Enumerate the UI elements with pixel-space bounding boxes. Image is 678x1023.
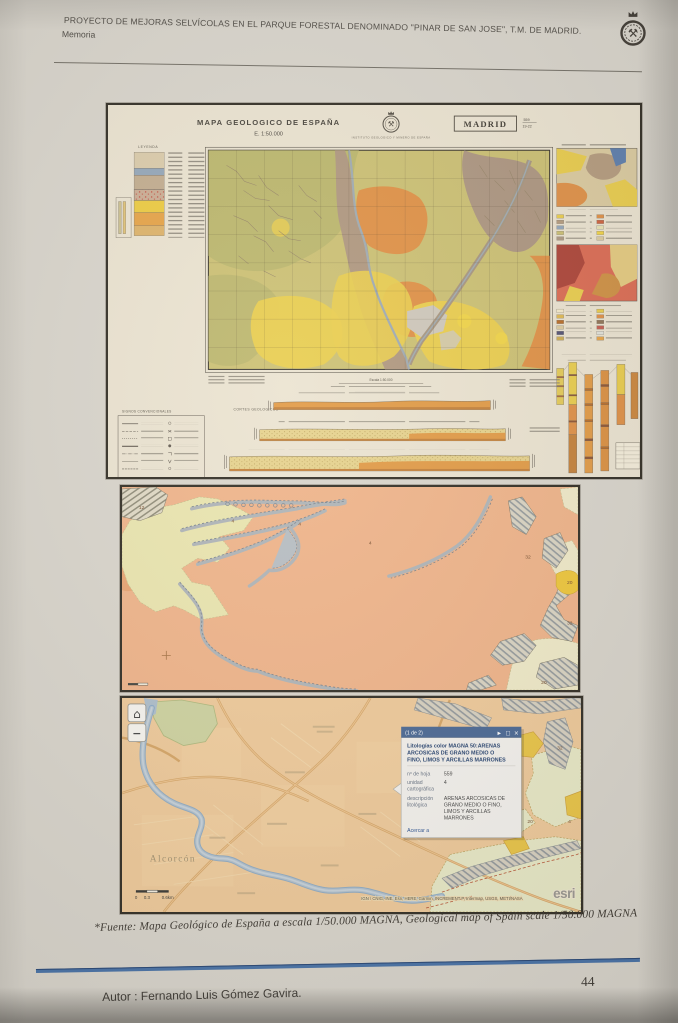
svg-text:LIMOS Y ARCILLAS: LIMOS Y ARCILLAS — [444, 809, 491, 815]
svg-text:4: 4 — [369, 540, 372, 546]
figure-geology-detail-map: 12 4 4 4 32 20 32 20 — [120, 485, 580, 692]
map-attribution: IGN / CNIG, INE, Esri, HERE, Garmin, INC… — [361, 896, 523, 901]
sheet-number: 559 — [524, 118, 530, 122]
svg-text:20: 20 — [567, 580, 573, 586]
svg-text:⚒: ⚒ — [388, 120, 395, 129]
photographed-report-page: { "page": { "header_title": "PROYECTO DE… — [0, 0, 678, 1023]
inset-geomorphologic-map — [557, 148, 637, 206]
place-label: Alcorcón — [150, 854, 196, 864]
footer-author: Autor : Fernando Luis Gómez Gavira. — [102, 986, 302, 1004]
home-icon: ⌂ — [133, 707, 141, 721]
sheet-main-map — [205, 147, 552, 372]
esri-logo: esri — [553, 886, 575, 901]
popup-close-icon[interactable]: × — [514, 730, 519, 737]
sheet-scale: E. 1:50.000 — [254, 132, 283, 138]
svg-text:4: 4 — [232, 519, 235, 525]
header-rule — [54, 62, 642, 73]
sheet-grid-number: 19-22 — [523, 125, 532, 129]
cortes-label: CORTES GEOLOGICOS — [233, 408, 278, 412]
svg-text:559: 559 — [444, 771, 453, 777]
svg-text:⚒: ⚒ — [628, 26, 638, 40]
signos-label: SIGNOS CONVENCIONALES — [122, 410, 172, 414]
map-sheet-svg: MAPA GEOLOGICO DE ESPAÑA E. 1:50.000 ⚒ I… — [108, 105, 640, 477]
svg-text:Litologías color MAGNA 50:AREN: Litologías color MAGNA 50:ARENAS — [407, 744, 501, 750]
svg-text:nº de hoja: nº de hoja — [407, 771, 430, 777]
svg-text:20: 20 — [527, 819, 533, 825]
zoom-out-icon: − — [132, 727, 141, 740]
sheet-title: MAPA GEOLOGICO DE ESPAÑA — [197, 118, 340, 127]
inset-regional-map — [557, 245, 637, 301]
report-header-subtitle: Memoria — [62, 29, 96, 40]
popup-title: Litologías color MAGNA 50:ARENAS ARCOSIC… — [407, 744, 506, 764]
svg-text:0.3: 0.3 — [144, 895, 151, 900]
sheet-institute: INSTITUTO GEOLOGICO Y MINERO DE ESPAÑA — [352, 135, 431, 140]
svg-text:GRANO MEDIO O FINO,: GRANO MEDIO O FINO, — [444, 802, 502, 808]
svg-text:4: 4 — [568, 819, 571, 825]
mini-scale-bar — [128, 683, 148, 685]
svg-text:MARRONES: MARRONES — [444, 815, 474, 821]
geology-detail-svg: 12 4 4 4 32 20 32 20 — [122, 487, 578, 690]
mining-school-crest-icon: ⚒ — [612, 3, 654, 59]
svg-text:20: 20 — [541, 680, 547, 686]
svg-text:0.6km: 0.6km — [162, 895, 174, 900]
svg-text:litológica: litológica — [407, 802, 427, 808]
page-number: 44 — [581, 974, 595, 990]
svg-text:cartográfica: cartográfica — [407, 787, 434, 793]
svg-text:32: 32 — [525, 554, 531, 560]
svg-text:32: 32 — [567, 621, 573, 627]
identify-popup: (1 de 2) ▶ □ × Litologías color MAGNA 50… — [393, 727, 524, 840]
columns-key-table — [616, 443, 640, 469]
report-header-title: PROYECTO DE MEJORAS SELVÍCOLAS EN EL PAR… — [64, 15, 629, 37]
popup-zoom-link[interactable]: Acercar a — [407, 828, 429, 834]
figure-web-map-viewer: Alcorcón 32 20 4 ⌂ − (1 de 2) ▶ □ × Lito… — [120, 696, 583, 914]
popup-pager: (1 de 2) — [405, 730, 423, 736]
svg-text:descripción: descripción — [407, 796, 433, 802]
web-map-svg: Alcorcón 32 20 4 ⌂ − (1 de 2) ▶ □ × Lito… — [122, 698, 581, 912]
popup-next-icon[interactable]: ▶ — [498, 731, 502, 736]
footer-rule — [36, 958, 640, 973]
popup-window-icon[interactable]: □ — [505, 731, 510, 737]
figure-geological-map-sheet: MAPA GEOLOGICO DE ESPAÑA E. 1:50.000 ⚒ I… — [106, 103, 642, 479]
sheet-name: MADRID — [464, 119, 508, 129]
escala-label: Escala 1:50.000 — [370, 378, 393, 382]
svg-text:12: 12 — [139, 505, 145, 511]
svg-text:4: 4 — [298, 522, 301, 528]
svg-text:4: 4 — [444, 780, 447, 786]
svg-text:unidad: unidad — [407, 780, 423, 786]
svg-text:ARENAS ARCOSICAS DE: ARENAS ARCOSICAS DE — [444, 796, 506, 802]
svg-text:32: 32 — [557, 746, 563, 752]
svg-text:ARCOSICAS DE GRANO MEDIO O: ARCOSICAS DE GRANO MEDIO O — [407, 750, 494, 756]
leyenda-label: LEYENDA — [138, 145, 158, 149]
svg-text:FINO, LIMOS Y ARCILLAS MARRONE: FINO, LIMOS Y ARCILLAS MARRONES — [407, 757, 506, 763]
